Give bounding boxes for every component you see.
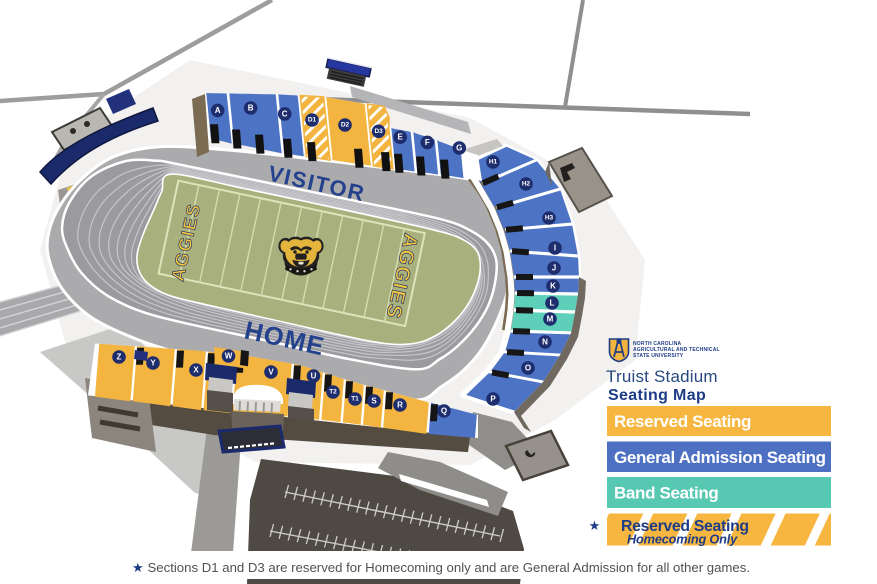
svg-text:K: K <box>550 282 556 291</box>
svg-text:H2: H2 <box>522 181 531 188</box>
svg-text:W: W <box>225 352 233 361</box>
svg-text:Z: Z <box>117 353 122 362</box>
svg-text:Seating Map: Seating Map <box>608 387 706 404</box>
svg-text:L: L <box>550 299 555 308</box>
svg-text:Y: Y <box>150 359 156 368</box>
svg-text:H1: H1 <box>489 159 498 166</box>
svg-text:J: J <box>552 264 556 273</box>
svg-text:P: P <box>490 395 496 404</box>
svg-text:General Admission Seating: General Admission Seating <box>614 448 826 467</box>
svg-text:S: S <box>371 397 377 406</box>
svg-text:A: A <box>215 106 221 115</box>
svg-text:X: X <box>193 366 199 375</box>
svg-text:D2: D2 <box>341 122 350 129</box>
svg-text:Band Seating: Band Seating <box>614 484 718 503</box>
svg-text:T2: T2 <box>329 389 337 396</box>
svg-text:E: E <box>398 133 404 142</box>
svg-text:I: I <box>554 244 556 253</box>
svg-text:O: O <box>525 364 531 373</box>
svg-text:★: ★ <box>589 518 601 533</box>
svg-text:★ Sections D1 and D3 are reser: ★ Sections D1 and D3 are reserved for Ho… <box>132 560 750 575</box>
svg-text:C: C <box>282 109 288 118</box>
svg-text:U: U <box>311 372 317 381</box>
svg-text:D1: D1 <box>308 117 317 124</box>
svg-text:T1: T1 <box>351 396 359 403</box>
svg-text:R: R <box>397 401 403 410</box>
svg-text:D3: D3 <box>374 128 383 135</box>
svg-text:M: M <box>547 315 554 324</box>
svg-text:N: N <box>542 338 548 347</box>
svg-text:H3: H3 <box>545 215 554 222</box>
svg-text:STATE UNIVERSITY: STATE UNIVERSITY <box>633 353 684 359</box>
svg-text:F: F <box>425 138 430 147</box>
svg-text:Homecoming Only: Homecoming Only <box>627 532 738 547</box>
svg-text:Truist Stadium: Truist Stadium <box>606 367 718 386</box>
svg-text:B: B <box>248 104 254 113</box>
svg-text:Q: Q <box>441 407 447 416</box>
svg-text:V: V <box>268 368 274 377</box>
svg-text:Reserved Seating: Reserved Seating <box>614 412 751 431</box>
svg-text:G: G <box>456 144 462 153</box>
